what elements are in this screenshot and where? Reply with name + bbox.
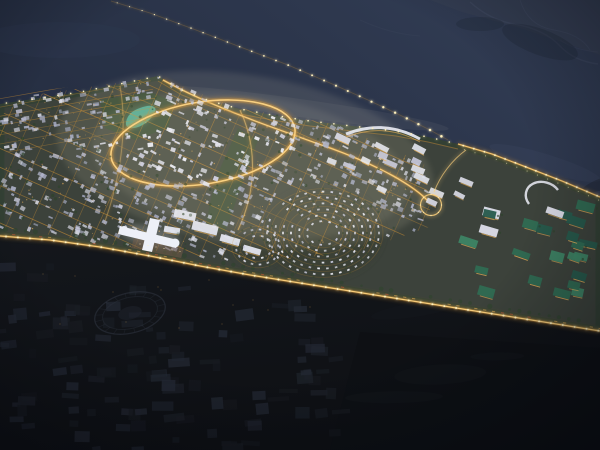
vignette	[0, 0, 600, 450]
aerial-render	[0, 0, 600, 450]
scene-svg	[0, 0, 600, 450]
